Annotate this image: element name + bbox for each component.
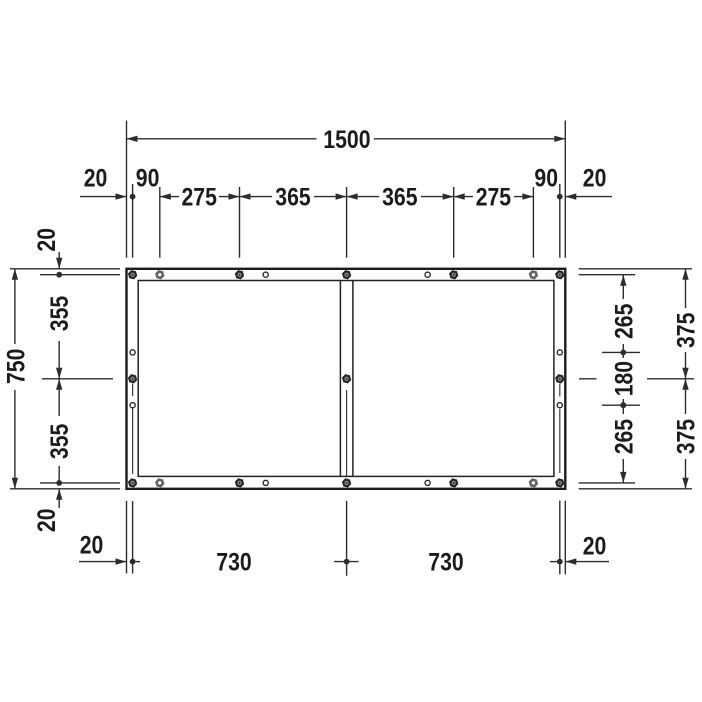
svg-text:265: 265 [610,419,638,454]
svg-text:355: 355 [46,424,74,459]
svg-text:375: 375 [673,419,701,454]
svg-text:20: 20 [583,532,607,560]
svg-text:365: 365 [275,183,310,211]
svg-text:20: 20 [33,509,61,533]
svg-text:1500: 1500 [323,126,370,154]
svg-text:90: 90 [534,164,558,192]
svg-text:365: 365 [382,183,417,211]
svg-text:375: 375 [673,313,701,348]
svg-text:750: 750 [3,349,31,384]
svg-text:355: 355 [46,296,74,331]
svg-text:730: 730 [216,549,251,577]
svg-text:20: 20 [583,164,607,192]
svg-text:20: 20 [80,532,104,560]
svg-text:275: 275 [476,183,511,211]
svg-text:730: 730 [428,549,463,577]
svg-text:275: 275 [182,183,217,211]
svg-text:20: 20 [84,164,108,192]
svg-text:20: 20 [33,228,61,252]
svg-text:90: 90 [136,164,160,192]
svg-text:265: 265 [610,304,638,339]
svg-text:180: 180 [610,361,638,396]
